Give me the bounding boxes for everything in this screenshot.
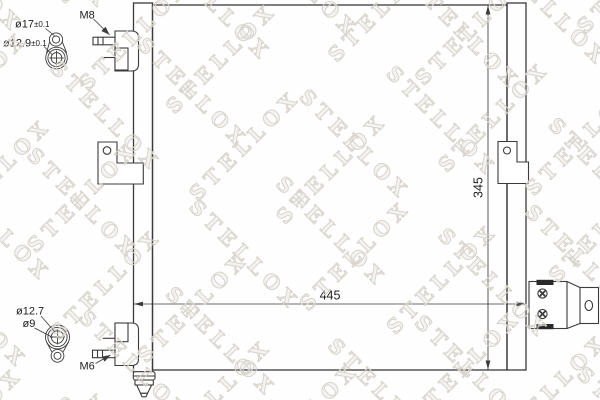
connector-tab — [580, 288, 599, 324]
label-port-top-outer: ø17±0.1 — [15, 19, 50, 31]
label-thread-bottom: M6 — [80, 361, 95, 373]
technical-drawing-canvas: ø17±0.1 ø12.9±0.1 M8 ø12.7 ø9 M6 445 345… — [0, 0, 600, 400]
phillips-screw-icon — [538, 289, 547, 298]
condenser-core — [153, 5, 508, 370]
label-width-445: 445 — [320, 289, 341, 303]
dimension-labels: ø17±0.1 ø12.9±0.1 M8 ø12.7 ø9 M6 445 345 — [3, 10, 486, 373]
m8-fitting-block — [93, 31, 139, 71]
m6-threaded-stud — [93, 350, 116, 358]
drain-valve — [133, 372, 155, 397]
port-fitting-bottom-view — [46, 325, 70, 362]
m6-fitting-block — [93, 323, 139, 366]
mounting-bracket-right — [498, 142, 529, 184]
condenser-assembly — [134, 3, 527, 372]
label-port-top-inner: ø12.9±0.1 — [3, 38, 47, 50]
label-thread-top: M8 — [80, 10, 95, 22]
receiver-drier — [507, 3, 526, 370]
port-fitting-top-view — [46, 33, 68, 69]
connector-block — [529, 280, 599, 329]
phillips-screw-icon — [538, 309, 547, 318]
mounting-bracket-left — [98, 142, 143, 184]
m8-threaded-stud — [93, 37, 115, 45]
leader-lines — [35, 19, 111, 364]
condenser-drawing: ø17±0.1 ø12.9±0.1 M8 ø12.7 ø9 M6 445 345 — [0, 0, 600, 400]
label-height-345: 345 — [472, 177, 486, 198]
dimension-lines — [134, 6, 526, 370]
label-port-bottom-outer: ø12.7 — [16, 306, 44, 318]
label-port-bottom-inner: ø9 — [23, 318, 36, 330]
